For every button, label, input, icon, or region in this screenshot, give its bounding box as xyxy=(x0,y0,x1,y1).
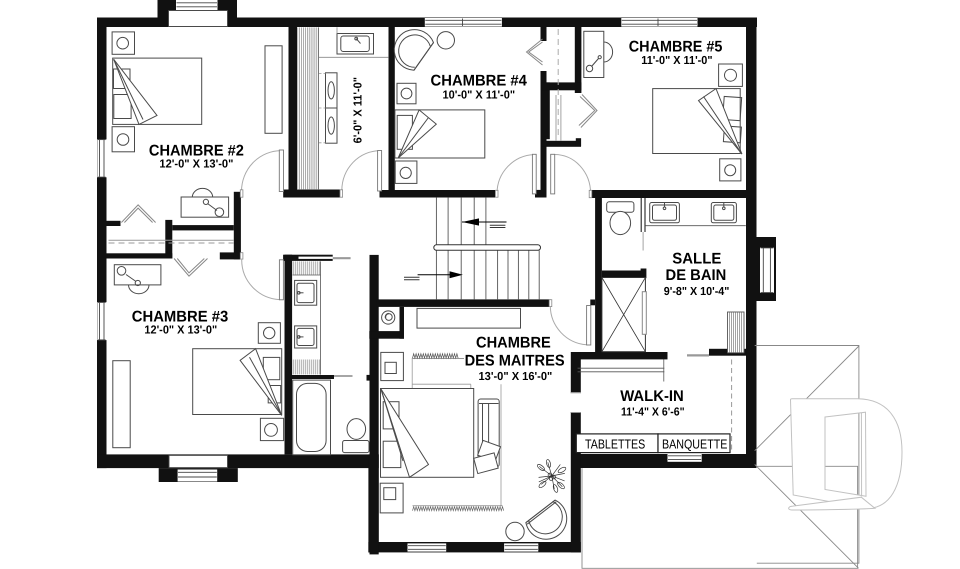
svg-text:CHAMBRE: CHAMBRE xyxy=(476,334,551,351)
svg-text:BANQUETTE: BANQUETTE xyxy=(662,437,728,452)
svg-text:13'-0" X 16'-0": 13'-0" X 16'-0" xyxy=(479,370,553,383)
svg-text:DES MAITRES: DES MAITRES xyxy=(465,353,565,370)
svg-text:9'-8" X 10'-4": 9'-8" X 10'-4" xyxy=(664,285,730,298)
svg-text:WALK-IN: WALK-IN xyxy=(620,388,684,405)
svg-text:TABLETTES: TABLETTES xyxy=(585,437,645,452)
svg-text:SALLE: SALLE xyxy=(672,250,721,267)
svg-text:12'-0" X 13'-0": 12'-0" X 13'-0" xyxy=(144,324,217,337)
svg-text:CHAMBRE #4: CHAMBRE #4 xyxy=(431,73,528,90)
svg-text:10'-0" X 11'-0": 10'-0" X 11'-0" xyxy=(443,89,516,102)
svg-text:11'-0" X 11'-0": 11'-0" X 11'-0" xyxy=(641,54,712,67)
svg-text:12'-0" X 13'-0": 12'-0" X 13'-0" xyxy=(159,157,233,170)
svg-text:DE BAIN: DE BAIN xyxy=(666,267,727,284)
svg-text:11'-4" X 6'-6": 11'-4" X 6'-6" xyxy=(621,405,685,418)
svg-text:6'-0" X 11'-0": 6'-0" X 11'-0" xyxy=(352,77,365,143)
